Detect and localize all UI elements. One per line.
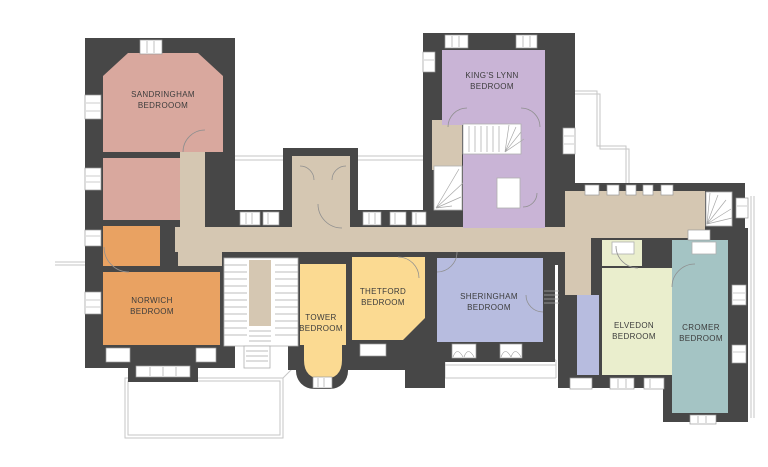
room-sheringham-dressing: [577, 295, 599, 375]
window: [240, 212, 260, 225]
window: [412, 212, 426, 225]
window: [585, 185, 599, 195]
window: [732, 345, 746, 363]
window: [690, 415, 716, 424]
floor-plan-drawing: SANDRINGHAM BEDROOOM KING'S LYNN BEDROOM…: [0, 0, 768, 467]
arched-window: [500, 344, 522, 358]
wall-terrace-pillar: [405, 356, 445, 388]
label-tower-1: TOWER: [305, 313, 336, 322]
window: [607, 185, 619, 195]
main-stair-landing: [249, 260, 271, 326]
window: [196, 348, 216, 362]
window: [563, 128, 575, 154]
window: [445, 35, 468, 48]
window: [423, 52, 435, 72]
label-thetford-1: THETFORD: [360, 287, 406, 296]
window: [106, 348, 130, 362]
window: [736, 198, 748, 218]
window: [85, 95, 101, 119]
corridor-main: [175, 227, 558, 252]
corridor-stair-link: [178, 252, 222, 266]
label-kings-lynn-2: BEDROOM: [470, 82, 514, 91]
window: [140, 40, 162, 54]
window: [626, 185, 636, 195]
label-thetford-2: BEDROOM: [361, 298, 405, 307]
floor-plan: SANDRINGHAM BEDROOOM KING'S LYNN BEDROOM…: [0, 0, 768, 467]
window: [688, 230, 710, 240]
label-kings-lynn-1: KING'S LYNN: [465, 71, 518, 80]
east-staircase: [706, 192, 732, 226]
label-sheringham-1: SHERINGHAM: [460, 292, 518, 301]
window: [85, 168, 101, 190]
bay-window-tower: [313, 377, 332, 388]
window: [643, 185, 653, 195]
room-sandringham-lower: [103, 158, 180, 220]
main-staircase: [224, 258, 298, 368]
arched-window: [452, 344, 476, 358]
label-sandringham-2: BEDROOOM: [138, 101, 188, 110]
label-cromer-2: BEDROOM: [679, 334, 723, 343]
label-sheringham-2: BEDROOM: [467, 303, 511, 312]
window: [732, 285, 746, 305]
window: [661, 185, 673, 195]
window: [360, 344, 386, 356]
corridor-sandringham-link: [180, 150, 205, 230]
window: [390, 212, 406, 225]
window: [263, 212, 279, 225]
elvedon-ensuite-fixture: [612, 242, 634, 254]
cromer-ensuite-fixture: [692, 242, 716, 254]
main-stair-lower-flight: [244, 346, 270, 368]
room-tower-bay: [304, 345, 342, 379]
terrace-below-sheringham: [445, 360, 556, 378]
label-norwich-2: BEDROOM: [130, 307, 174, 316]
kl-closet: [497, 178, 520, 208]
window: [85, 230, 101, 246]
window: [570, 378, 592, 389]
room-norwich-small: [103, 226, 160, 266]
kl-stair-well: [463, 124, 521, 154]
terrace-line-left: [55, 262, 85, 265]
label-norwich-1: NORWICH: [131, 296, 172, 305]
label-elvedon-1: ELVEDON: [614, 321, 654, 330]
terrace-right-band: [751, 196, 754, 418]
corridor-kings-lynn-back: [432, 120, 462, 170]
label-sandringham-1: SANDRINGHAM: [131, 90, 195, 99]
label-tower-2: BEDROOM: [299, 324, 343, 333]
window: [610, 378, 634, 389]
label-cromer-1: CROMER: [682, 323, 720, 332]
window: [363, 212, 381, 225]
window: [516, 35, 537, 48]
roof-outline-top-right: [570, 91, 629, 188]
window: [85, 292, 101, 314]
label-elvedon-2: BEDROOM: [612, 332, 656, 341]
window: [644, 378, 664, 389]
